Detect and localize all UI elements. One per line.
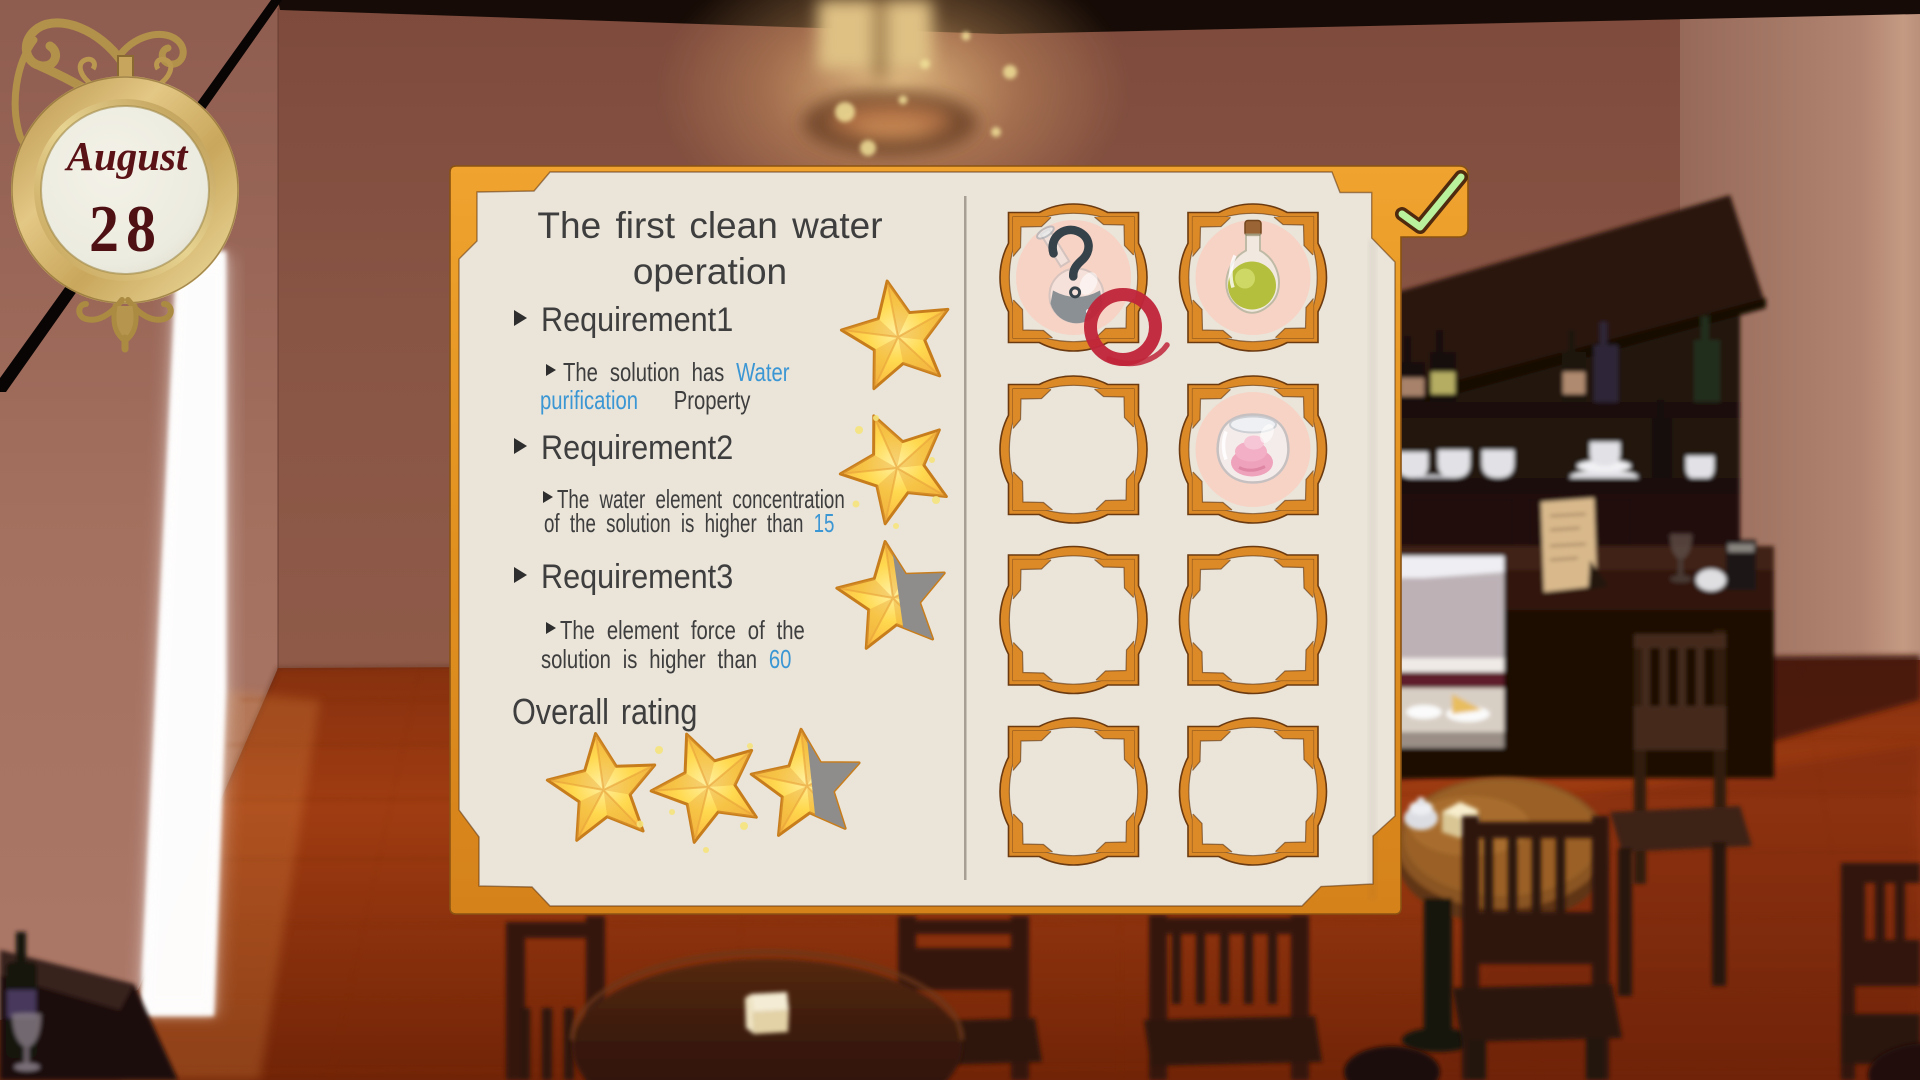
svg-text:28: 28 [89,191,163,266]
svg-text:August: August [64,133,189,179]
